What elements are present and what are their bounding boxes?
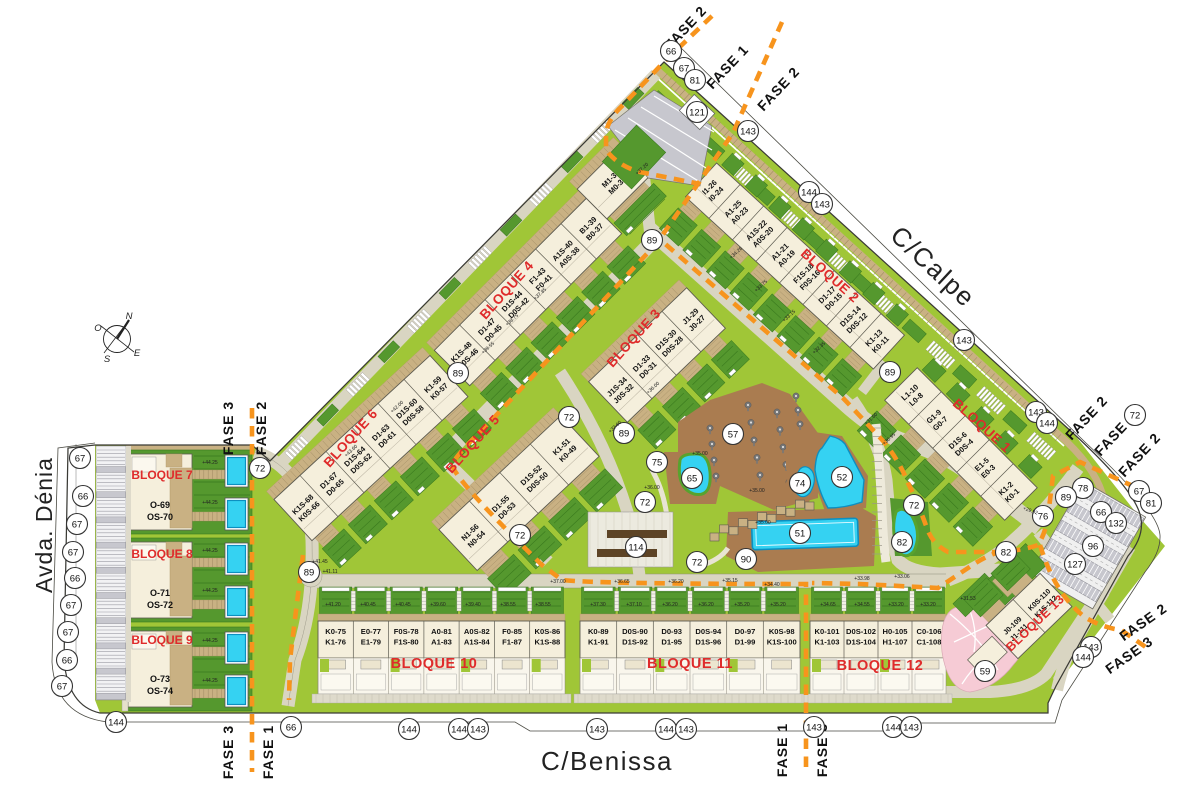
svg-text:+35.00: +35.00 — [755, 520, 771, 526]
svg-text:76: 76 — [1038, 511, 1049, 522]
svg-text:E0-77: E0-77 — [361, 627, 381, 636]
svg-text:A0-81: A0-81 — [431, 627, 452, 636]
svg-text:57: 57 — [728, 429, 739, 440]
svg-text:72: 72 — [515, 530, 526, 541]
svg-text:FASE 1: FASE 1 — [260, 725, 276, 779]
svg-text:143: 143 — [814, 199, 830, 210]
svg-text:D0S-102: D0S-102 — [846, 627, 876, 636]
svg-text:+44.25: +44.25 — [202, 548, 218, 554]
svg-text:72: 72 — [909, 500, 920, 511]
svg-text:89: 89 — [1061, 492, 1072, 503]
svg-text:+33.06: +33.06 — [894, 574, 910, 580]
svg-text:67: 67 — [57, 681, 68, 692]
svg-text:+40.45: +40.45 — [395, 602, 411, 608]
svg-text:+36.65: +36.65 — [614, 579, 630, 585]
svg-text:BLOQUE 8: BLOQUE 8 — [131, 547, 193, 561]
svg-text:BLOQUE 9: BLOQUE 9 — [131, 633, 193, 647]
svg-text:K1-103: K1-103 — [815, 638, 840, 647]
svg-text:F1-87: F1-87 — [502, 638, 522, 647]
svg-text:+36.20: +36.20 — [668, 579, 684, 585]
svg-text:143: 143 — [903, 722, 919, 733]
svg-text:144: 144 — [451, 724, 467, 735]
svg-text:D1S-96: D1S-96 — [695, 638, 721, 647]
svg-text:+38.55: +38.55 — [500, 602, 516, 608]
svg-text:C/Benissa: C/Benissa — [541, 746, 673, 776]
svg-text:67: 67 — [68, 547, 79, 558]
svg-text:+40.45: +40.45 — [360, 602, 376, 608]
svg-text:143: 143 — [806, 722, 822, 733]
svg-text:67: 67 — [75, 453, 86, 464]
svg-text:66: 66 — [62, 655, 73, 666]
svg-text:82: 82 — [897, 537, 908, 548]
svg-text:72: 72 — [692, 557, 703, 568]
svg-text:A1S-84: A1S-84 — [464, 638, 491, 647]
svg-text:89: 89 — [619, 428, 630, 439]
svg-text:+35.15: +35.15 — [722, 578, 738, 584]
svg-text:+35.20: +35.20 — [734, 602, 750, 608]
svg-text:143: 143 — [470, 724, 486, 735]
svg-text:114: 114 — [628, 542, 643, 553]
svg-text:52: 52 — [837, 472, 848, 483]
svg-text:67: 67 — [66, 600, 77, 611]
svg-text:66: 66 — [666, 46, 677, 57]
svg-text:+33.20: +33.20 — [920, 602, 936, 608]
svg-text:C0-106: C0-106 — [917, 627, 942, 636]
svg-text:+44.25: +44.25 — [202, 678, 218, 684]
svg-text:144: 144 — [885, 722, 901, 733]
svg-text:H0-105: H0-105 — [883, 627, 909, 636]
svg-text:+39.60: +39.60 — [430, 602, 446, 608]
svg-text:66: 66 — [70, 573, 81, 584]
svg-text:Avda. Dénia: Avda. Dénia — [31, 457, 57, 593]
svg-text:66: 66 — [1096, 507, 1107, 518]
svg-text:81: 81 — [690, 75, 701, 86]
svg-text:D0-93: D0-93 — [661, 627, 682, 636]
svg-text:+38.55: +38.55 — [535, 602, 551, 608]
svg-text:BLOQUE 12: BLOQUE 12 — [837, 658, 924, 674]
svg-text:66: 66 — [78, 491, 89, 502]
svg-text:82: 82 — [1001, 547, 1012, 558]
svg-text:+39.40: +39.40 — [465, 602, 481, 608]
svg-text:+44.25: +44.25 — [202, 460, 218, 466]
svg-text:143: 143 — [740, 126, 756, 137]
svg-text:143: 143 — [956, 335, 972, 346]
svg-text:+36.20: +36.20 — [698, 602, 714, 608]
svg-text:65: 65 — [687, 473, 698, 484]
svg-text:72: 72 — [564, 412, 575, 423]
svg-text:132: 132 — [1108, 518, 1124, 529]
svg-text:K1-91: K1-91 — [588, 638, 609, 647]
svg-text:F1S-80: F1S-80 — [394, 638, 419, 647]
svg-text:+41.45: +41.45 — [312, 559, 328, 565]
svg-text:BLOQUE 11: BLOQUE 11 — [647, 656, 733, 672]
svg-text:H1-107: H1-107 — [883, 638, 908, 647]
svg-text:89: 89 — [304, 567, 315, 578]
svg-text:D1-95: D1-95 — [661, 638, 682, 647]
svg-text:S: S — [104, 354, 111, 365]
svg-text:+34.65: +34.65 — [820, 602, 836, 608]
svg-text:+35.00: +35.00 — [749, 488, 765, 494]
svg-text:144: 144 — [1075, 652, 1091, 663]
svg-text:BLOQUE 10: BLOQUE 10 — [391, 656, 478, 672]
svg-text:D0S-94: D0S-94 — [695, 627, 722, 636]
svg-text:+37.00: +37.00 — [550, 579, 566, 585]
svg-text:K1-76: K1-76 — [325, 638, 346, 647]
svg-text:96: 96 — [1088, 541, 1099, 552]
svg-text:72: 72 — [1130, 410, 1141, 421]
svg-text:+44.25: +44.25 — [202, 500, 218, 506]
svg-text:D1S-92: D1S-92 — [622, 638, 648, 647]
svg-text:67: 67 — [63, 627, 74, 638]
svg-text:+33.20: +33.20 — [888, 602, 904, 608]
svg-text:89: 89 — [647, 235, 658, 246]
svg-text:BLOQUE 7: BLOQUE 7 — [131, 468, 193, 482]
svg-text:O-69: O-69 — [150, 500, 170, 510]
svg-text:143: 143 — [678, 724, 694, 735]
svg-text:89: 89 — [453, 368, 464, 379]
svg-text:FASE 1: FASE 1 — [774, 723, 790, 777]
svg-text:59: 59 — [980, 666, 991, 677]
svg-text:51: 51 — [795, 528, 806, 539]
svg-text:+36.20: +36.20 — [662, 602, 678, 608]
svg-text:+34.55: +34.55 — [854, 602, 870, 608]
svg-text:K0S-98: K0S-98 — [769, 627, 795, 636]
svg-text:OS-70: OS-70 — [147, 512, 173, 522]
svg-text:+34.40: +34.40 — [764, 582, 780, 588]
svg-text:A1-83: A1-83 — [431, 638, 452, 647]
svg-text:K1S-88: K1S-88 — [535, 638, 561, 647]
svg-text:C1-108: C1-108 — [917, 638, 942, 647]
svg-text:O-71: O-71 — [150, 588, 170, 598]
svg-text:+41.11: +41.11 — [322, 569, 337, 575]
svg-text:F0S-78: F0S-78 — [394, 627, 419, 636]
svg-text:144: 144 — [108, 717, 124, 728]
svg-text:144: 144 — [1039, 418, 1055, 429]
svg-text:+35.20: +35.20 — [770, 602, 786, 608]
svg-text:+33.98: +33.98 — [854, 576, 870, 582]
svg-text:K1S-100: K1S-100 — [767, 638, 797, 647]
svg-text:D0S-90: D0S-90 — [622, 627, 648, 636]
svg-text:D1S-104: D1S-104 — [846, 638, 877, 647]
svg-text:D1-99: D1-99 — [735, 638, 756, 647]
svg-text:66: 66 — [286, 722, 297, 733]
svg-text:+44.25: +44.25 — [202, 588, 218, 594]
svg-text:+35.00: +35.00 — [692, 451, 708, 457]
svg-text:FASE 2: FASE 2 — [253, 401, 269, 455]
svg-text:N: N — [126, 311, 133, 322]
svg-text:72: 72 — [640, 497, 651, 508]
svg-text:127: 127 — [1067, 559, 1083, 570]
svg-text:74: 74 — [795, 478, 806, 489]
svg-text:+37.30: +37.30 — [590, 602, 606, 608]
svg-text:K0-75: K0-75 — [325, 627, 346, 636]
svg-text:E1-79: E1-79 — [361, 638, 381, 647]
svg-text:121: 121 — [689, 107, 705, 118]
svg-text:89: 89 — [885, 367, 896, 378]
svg-text:D0-97: D0-97 — [735, 627, 756, 636]
svg-text:144: 144 — [401, 724, 417, 735]
svg-text:75: 75 — [652, 457, 663, 468]
svg-text:81: 81 — [1146, 498, 1157, 509]
svg-text:FASE 3: FASE 3 — [220, 725, 236, 779]
svg-text:F0-85: F0-85 — [502, 627, 523, 636]
svg-text:+31.53: +31.53 — [960, 596, 976, 602]
svg-text:O-73: O-73 — [150, 674, 170, 684]
svg-text:K0S-86: K0S-86 — [535, 627, 561, 636]
svg-text:K0-101: K0-101 — [815, 627, 841, 636]
svg-text:+36.00: +36.00 — [644, 485, 660, 491]
svg-text:OS-72: OS-72 — [147, 600, 173, 610]
svg-text:+37.10: +37.10 — [626, 602, 642, 608]
svg-text:OS-74: OS-74 — [147, 686, 173, 696]
svg-text:144: 144 — [658, 724, 674, 735]
svg-text:O: O — [94, 323, 102, 334]
svg-text:K0-89: K0-89 — [588, 627, 609, 636]
svg-text:78: 78 — [1078, 483, 1089, 494]
svg-text:E: E — [134, 348, 141, 359]
svg-text:90: 90 — [741, 554, 752, 565]
svg-text:+44.25: +44.25 — [202, 638, 218, 644]
svg-text:A0S-82: A0S-82 — [464, 627, 490, 636]
svg-text:FASE 3: FASE 3 — [220, 401, 236, 455]
svg-text:+41.20: +41.20 — [325, 602, 341, 608]
svg-text:67: 67 — [72, 519, 83, 530]
svg-text:143: 143 — [589, 724, 605, 735]
svg-text:72: 72 — [255, 463, 266, 474]
